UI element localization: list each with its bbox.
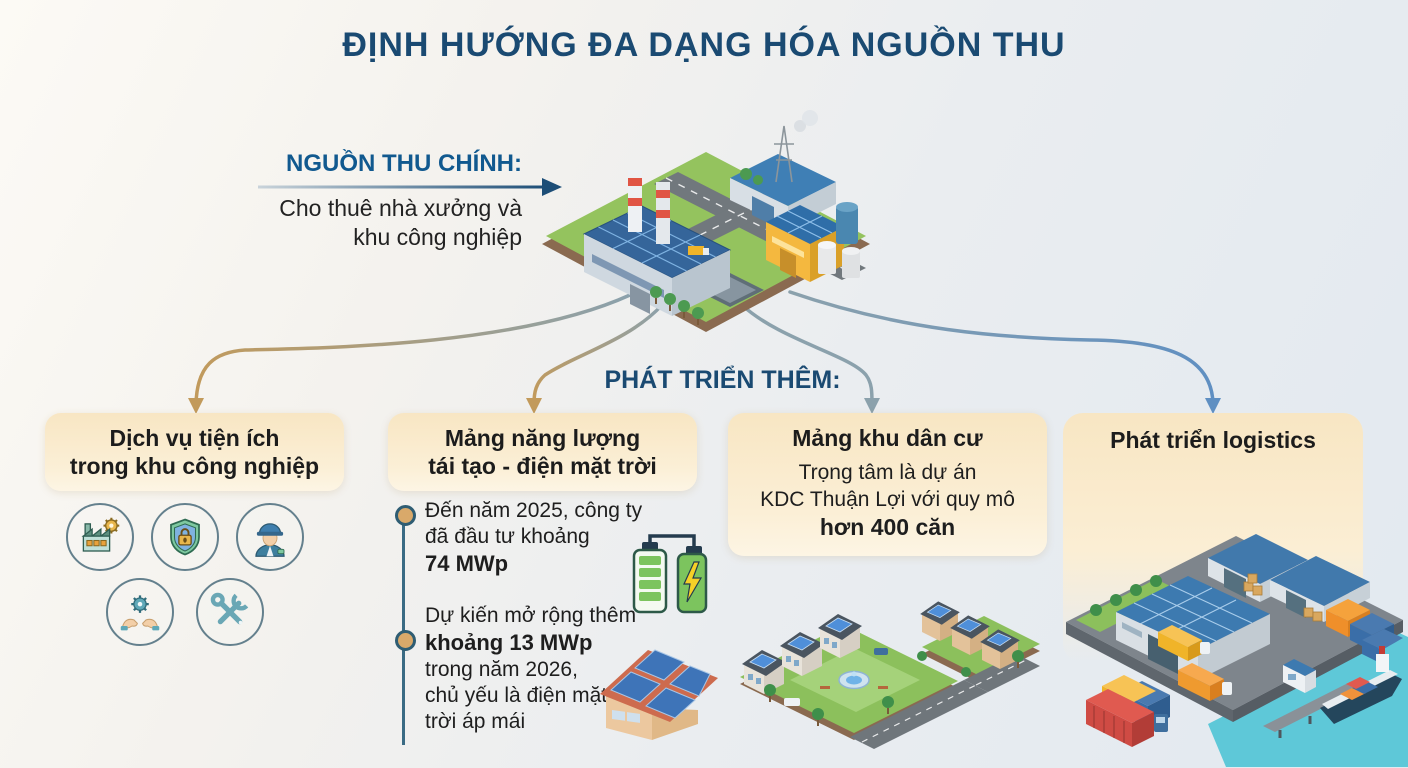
main-source-block: NGUỒN THU CHÍNH: Cho thuê nhà xưởng và k… (240, 150, 522, 253)
page-title: ĐỊNH HƯỚNG ĐA DẠNG HÓA NGUỒN THU (0, 26, 1408, 65)
residential-area-illustration (726, 552, 1041, 764)
bullet-dot-1 (395, 505, 416, 526)
card-utilities: Dịch vụ tiện ích trong khu công nghiệp (45, 413, 344, 491)
card-utilities-title: Dịch vụ tiện ích trong khu công nghiệp (51, 424, 338, 480)
card-residential: Mảng khu dân cư Trọng tâm là dự án KDC T… (728, 413, 1047, 556)
repair-tools-icon (196, 578, 264, 646)
card-logistics-title: Phát triển logistics (1069, 426, 1357, 454)
service-hands-icon (106, 578, 174, 646)
bullet-dot-2 (395, 630, 416, 651)
card-residential-title: Mảng khu dân cư (734, 424, 1041, 452)
card-residential-description: Trọng tâm là dự án KDC Thuận Lợi với quy… (734, 460, 1041, 542)
security-shield-icon (151, 503, 219, 571)
develop-label: PHÁT TRIỂN THÊM: (560, 366, 885, 395)
battery-storage-icon (632, 532, 710, 618)
engineer-worker-icon (236, 503, 304, 571)
logistics-port-illustration (1058, 462, 1408, 767)
card-renewable: Mảng năng lượng tái tạo - điện mặt trời (388, 413, 697, 491)
industrial-park-illustration (538, 86, 874, 332)
main-source-label: NGUỒN THU CHÍNH: (240, 150, 522, 178)
factory-gear-icon (66, 503, 134, 571)
renewable-bullet-1: Đến năm 2025, công ty đã đầu tư khoảng 7… (425, 498, 660, 578)
main-source-description: Cho thuê nhà xưởng và khu công nghiệp (240, 194, 522, 253)
solar-house-icon (598, 638, 720, 740)
card-renewable-title: Mảng năng lượng tái tạo - điện mặt trời (394, 424, 691, 480)
infographic-revenue-diversification: ĐỊNH HƯỚNG ĐA DẠNG HÓA NGUỒN THU NGUỒN T… (0, 0, 1408, 768)
